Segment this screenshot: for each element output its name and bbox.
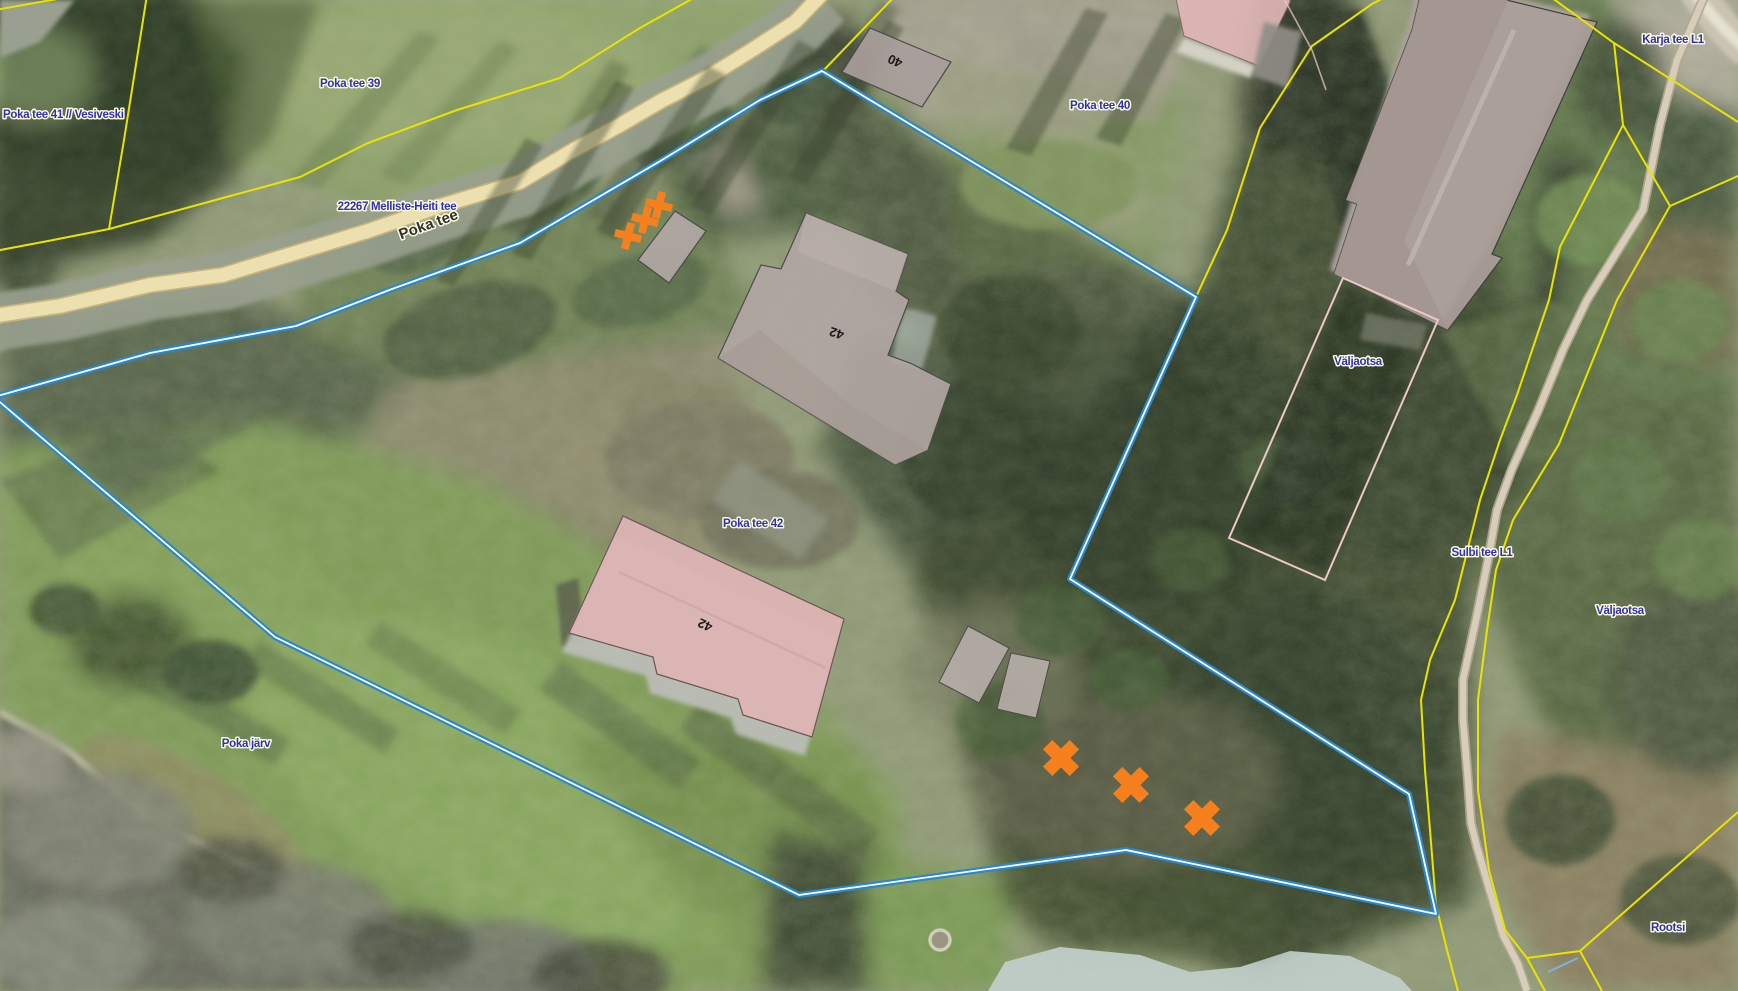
svg-text:Karja tee L1: Karja tee L1 xyxy=(1642,34,1705,46)
svg-text:Sulbi tee L1: Sulbi tee L1 xyxy=(1452,547,1514,559)
svg-text:Väljaotsa: Väljaotsa xyxy=(1334,356,1383,368)
svg-text:Poka tee 41 // Vesiveski: Poka tee 41 // Vesiveski xyxy=(3,109,124,121)
svg-text:Väljaotsa: Väljaotsa xyxy=(1596,605,1645,617)
svg-text:Poka tee 42: Poka tee 42 xyxy=(723,518,783,530)
svg-text:Rootsi: Rootsi xyxy=(1651,922,1685,934)
svg-text:Poka tee 40: Poka tee 40 xyxy=(1070,100,1130,112)
svg-text:Poka tee 39: Poka tee 39 xyxy=(320,78,380,90)
svg-text:Poka järv: Poka järv xyxy=(222,738,271,750)
